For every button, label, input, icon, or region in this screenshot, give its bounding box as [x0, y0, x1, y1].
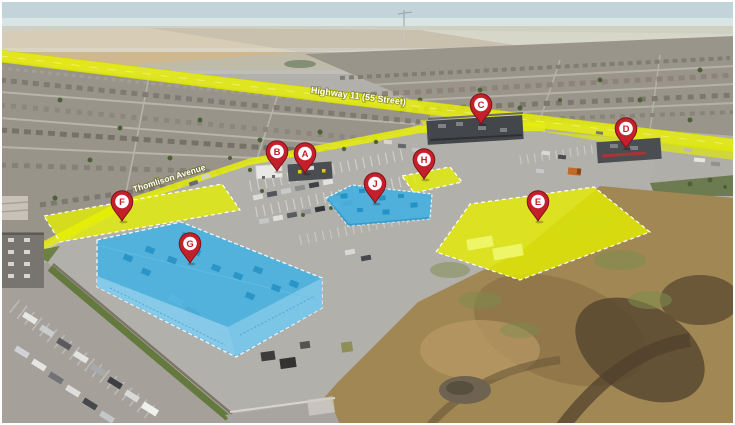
svg-text:A: A: [302, 149, 309, 160]
svg-text:E: E: [535, 197, 541, 208]
svg-text:D: D: [623, 124, 630, 135]
svg-text:J: J: [372, 179, 377, 190]
aerial-site-photo: Highway 11 (55 Street) Thomlison Avenue …: [0, 0, 735, 425]
svg-text:F: F: [119, 197, 125, 208]
svg-text:C: C: [478, 100, 485, 111]
svg-text:B: B: [274, 147, 281, 158]
svg-text:G: G: [186, 239, 193, 250]
svg-text:H: H: [421, 155, 428, 166]
